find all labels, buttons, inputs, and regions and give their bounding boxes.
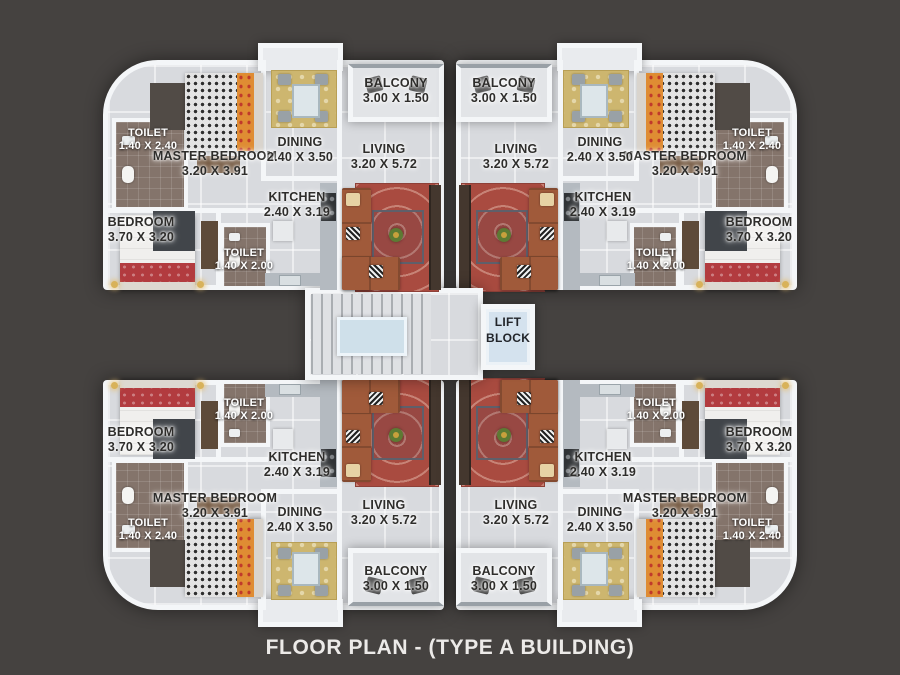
room-label-toilet-inner: TOILET1.40 X 2.00 [215, 247, 273, 273]
room-label-balcony: BALCONY3.00 X 1.50 [471, 564, 537, 594]
room-label-living: LIVING3.20 X 5.72 [351, 142, 417, 172]
tv-unit [429, 380, 441, 485]
sofa-pillow [346, 430, 360, 443]
apartment-unit-top-right: TOILET1.40 X 2.40 MASTER BEDROOM3.20 X 3… [456, 43, 797, 290]
toilet-fixture [766, 166, 778, 183]
bed-headboard [705, 282, 780, 290]
room-label-kitchen: KITCHEN2.40 X 3.19 [570, 450, 636, 480]
kitchen-island [273, 429, 293, 449]
bed-pillows [646, 73, 663, 151]
dining-bay [557, 599, 642, 627]
room-label-dining: DINING2.40 X 3.50 [267, 135, 333, 165]
bedside-lamp [696, 382, 703, 389]
dining-table [292, 84, 320, 118]
dining-chair [609, 111, 622, 122]
tv-unit [429, 185, 441, 290]
bedside-lamp [782, 382, 789, 389]
room-label-toilet-inner: TOILET1.40 X 2.00 [215, 397, 273, 423]
bedside-lamp [197, 382, 204, 389]
sofa-pillow [517, 392, 531, 405]
sofa-pillow [369, 392, 383, 405]
sofa-pillow [540, 464, 554, 477]
room-label-bedroom: BEDROOM3.70 X 3.20 [108, 215, 175, 245]
kitchen-sink [279, 384, 301, 395]
dining-rug [271, 542, 337, 600]
dining-chair [315, 585, 328, 596]
room-label-dining: DINING2.40 X 3.50 [267, 505, 333, 535]
master-bed [637, 519, 715, 597]
kitchen-sink [599, 384, 621, 395]
room-label-bedroom: BEDROOM3.70 X 3.20 [108, 425, 175, 455]
bed-headboard [254, 519, 263, 597]
dining-chair [278, 548, 291, 559]
bed-blanket [705, 263, 780, 282]
sofa-pillow [346, 193, 360, 206]
room-label-kitchen: KITCHEN2.40 X 3.19 [570, 190, 636, 220]
dining-chair [609, 74, 622, 85]
dining-rug [271, 70, 337, 128]
sink-fixture [660, 233, 671, 241]
kitchen-island [273, 221, 293, 241]
room-label-master-bedroom: MASTER BEDROOM3.20 X 3.91 [623, 491, 747, 521]
room-label-bedroom: BEDROOM3.70 X 3.20 [726, 425, 793, 455]
dining-bay [258, 599, 343, 627]
dining-chair [609, 548, 622, 559]
room-label-dining: DINING2.40 X 3.50 [567, 505, 633, 535]
sofa-pillow [540, 227, 554, 240]
sofa-pillow [346, 227, 360, 240]
dining-chair [278, 111, 291, 122]
sofa-pillow [346, 464, 360, 477]
room-label-master-bedroom: MASTER BEDROOM3.20 X 3.91 [153, 149, 277, 179]
bedside-lamp [197, 281, 204, 288]
kitchen-counter [265, 273, 337, 286]
sink-fixture [660, 429, 671, 437]
kitchen-sink [599, 275, 621, 286]
kitchen-island [607, 221, 627, 241]
room-label-balcony: BALCONY3.00 X 1.50 [363, 76, 429, 106]
kitchen-sink [279, 275, 301, 286]
tv-unit [459, 185, 471, 290]
kitchen-counter [265, 384, 337, 397]
toilet-fixture [766, 487, 778, 504]
room-label-toilet-inner: TOILET1.40 X 2.00 [627, 397, 685, 423]
bedside-lamp [111, 382, 118, 389]
room-label-dining: DINING2.40 X 3.50 [567, 135, 633, 165]
apartment-unit-bottom-right: TOILET1.40 X 2.40 MASTER BEDROOM3.20 X 3… [456, 380, 797, 627]
room-label-kitchen: KITCHEN2.40 X 3.19 [264, 450, 330, 480]
master-bed [185, 73, 263, 151]
dining-bay [258, 43, 343, 71]
bedside-lamp [782, 281, 789, 288]
bed-headboard [705, 380, 780, 388]
staircase [311, 294, 431, 374]
toilet-fixture [122, 487, 134, 504]
room-label-living: LIVING3.20 X 5.72 [351, 498, 417, 528]
sofa-pillow [540, 193, 554, 206]
sink-fixture [229, 233, 240, 241]
room-label-living: LIVING3.20 X 5.72 [483, 142, 549, 172]
sofa-pillow [369, 265, 383, 278]
dining-table [580, 552, 608, 586]
apartment-unit-top-left: TOILET1.40 X 2.40 MASTER BEDROOM3.20 X 3… [103, 43, 444, 290]
floor-plan-canvas: TOILET1.40 X 2.40 MASTER BEDROOM3.20 X 3… [0, 0, 900, 675]
sofa-pillow [517, 265, 531, 278]
bed-headboard [120, 282, 195, 290]
room-label-bedroom: BEDROOM3.70 X 3.20 [726, 215, 793, 245]
bed-headboard [120, 380, 195, 388]
apartment-unit-bottom-left: TOILET1.40 X 2.40 MASTER BEDROOM3.20 X 3… [103, 380, 444, 627]
dining-chair [609, 585, 622, 596]
bed-duvet [663, 519, 715, 597]
central-core [305, 288, 483, 380]
room-label-kitchen: KITCHEN2.40 X 3.19 [264, 190, 330, 220]
bed-blanket [705, 388, 780, 407]
plan-title: FLOOR PLAN - (TYPE A BUILDING) [0, 636, 900, 660]
bed-blanket [120, 263, 195, 282]
bed-duvet [185, 73, 237, 151]
centerpiece-plant [497, 428, 511, 442]
bed-blanket [120, 388, 195, 407]
bed-pillows [646, 519, 663, 597]
bed-headboard [637, 519, 646, 597]
dining-table [292, 552, 320, 586]
master-bed [185, 519, 263, 597]
room-label-balcony: BALCONY3.00 X 1.50 [471, 76, 537, 106]
bed-duvet [185, 519, 237, 597]
room-label-balcony: BALCONY3.00 X 1.50 [363, 564, 429, 594]
tv-unit [459, 380, 471, 485]
bed-headboard [637, 73, 646, 151]
sink-fixture [229, 429, 240, 437]
room-label-master-bedroom: MASTER BEDROOM3.20 X 3.91 [153, 491, 277, 521]
dining-rug [563, 542, 629, 600]
bedside-lamp [111, 281, 118, 288]
lift-block-label: LIFTBLOCK [486, 314, 530, 346]
centerpiece-plant [389, 228, 403, 242]
stair-landing [337, 317, 407, 356]
master-bed [637, 73, 715, 151]
dining-rug [563, 70, 629, 128]
bed-pillows [237, 519, 254, 597]
dining-table [580, 84, 608, 118]
room-label-master-bedroom: MASTER BEDROOM3.20 X 3.91 [623, 149, 747, 179]
room-label-toilet-inner: TOILET1.40 X 2.00 [627, 247, 685, 273]
kitchen-island [607, 429, 627, 449]
lift-block: LIFTBLOCK [481, 304, 535, 370]
bed-pillows [237, 73, 254, 151]
dining-bay [557, 43, 642, 71]
dining-chair [278, 74, 291, 85]
dining-chair [572, 585, 585, 596]
centerpiece-plant [497, 228, 511, 242]
toilet-fixture [122, 166, 134, 183]
bed-headboard [254, 73, 263, 151]
bed-duvet [663, 73, 715, 151]
centerpiece-plant [389, 428, 403, 442]
room-label-living: LIVING3.20 X 5.72 [483, 498, 549, 528]
sofa-pillow [540, 430, 554, 443]
bedside-lamp [696, 281, 703, 288]
dining-chair [278, 585, 291, 596]
